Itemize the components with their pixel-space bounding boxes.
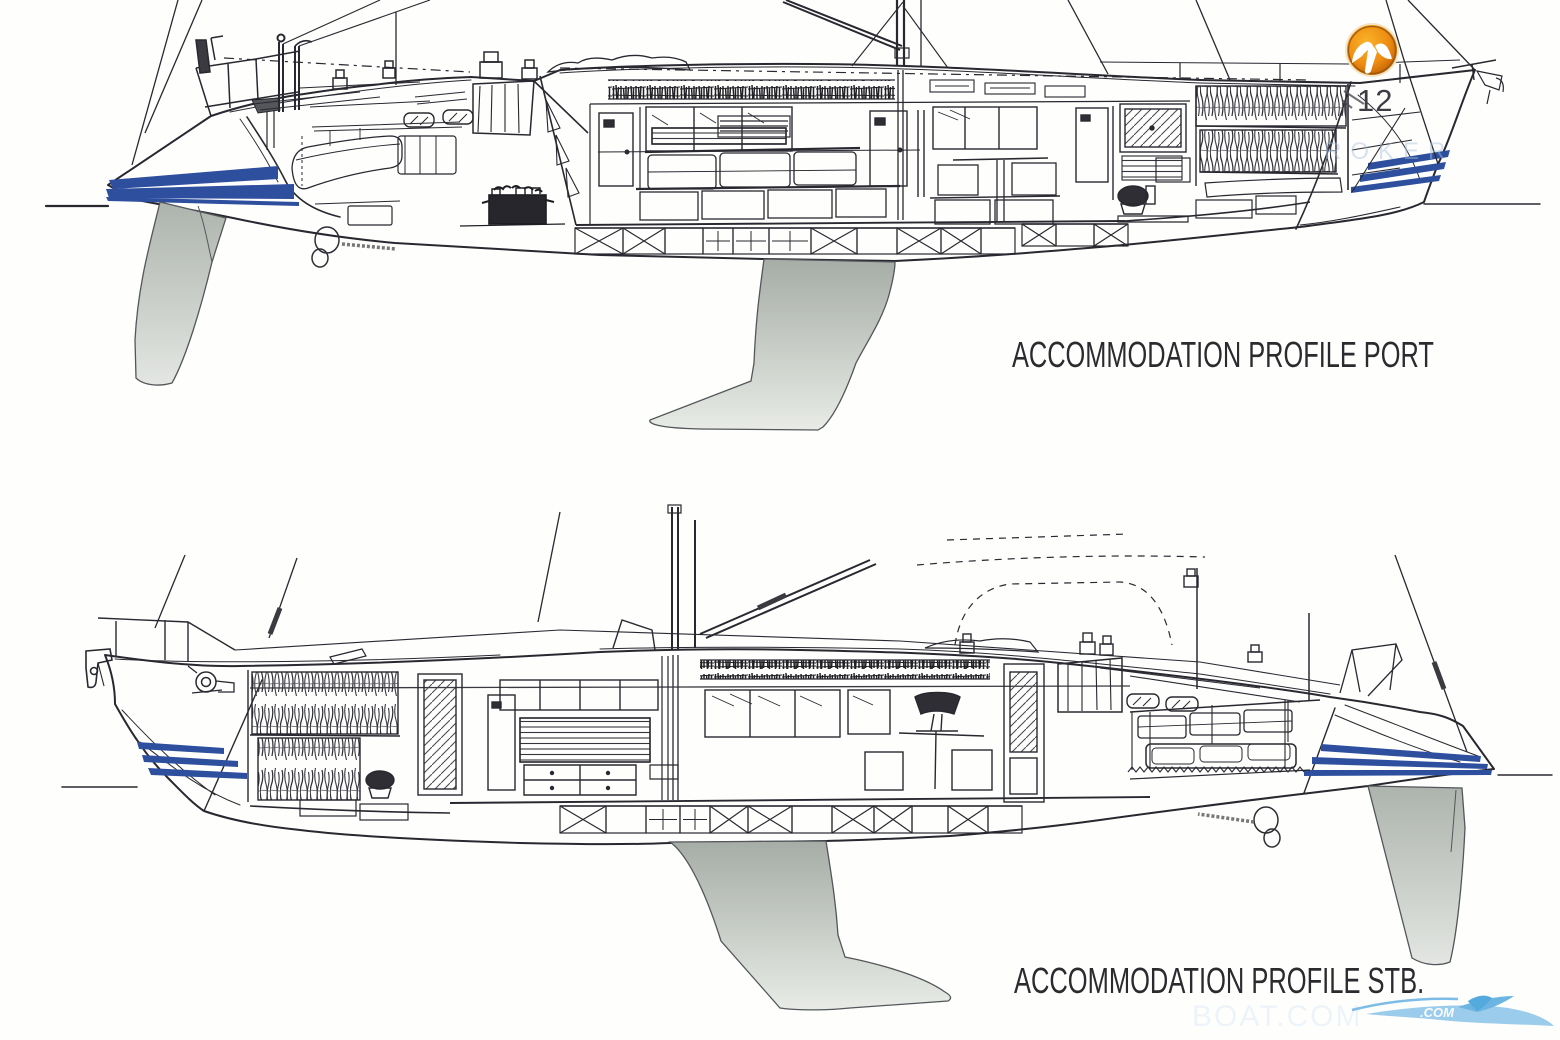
svg-text:ACCOMMODATION PROFILE STB.: ACCOMMODATION PROFILE STB. — [1014, 961, 1424, 1001]
svg-text:BOAT.COM: BOAT.COM — [1192, 1000, 1362, 1033]
svg-text:.COM: .COM — [1420, 1005, 1455, 1020]
svg-text:ROKER: ROKER — [1324, 138, 1454, 165]
svg-text:12: 12 — [1357, 83, 1393, 118]
svg-text:ACCOMMODATION PROFILE PORT: ACCOMMODATION PROFILE PORT — [1012, 335, 1434, 375]
